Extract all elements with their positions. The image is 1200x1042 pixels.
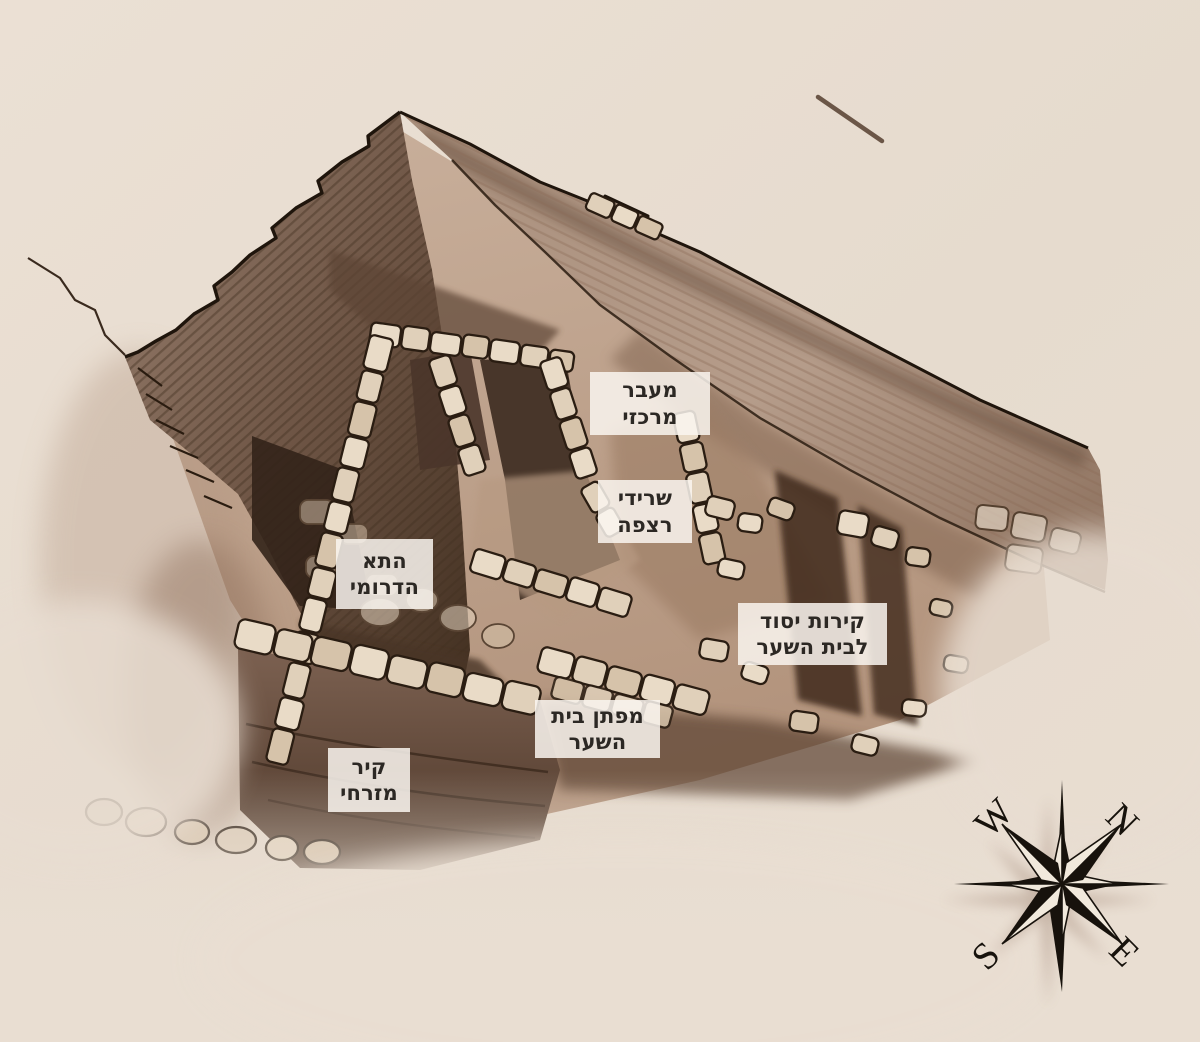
label-central-passage: מעבר מרכזי <box>590 372 710 435</box>
label-foundation-walls: קירות יסוד לבית השער <box>738 603 887 665</box>
label-line: קיר <box>328 754 410 780</box>
label-line: לבית השער <box>738 634 887 660</box>
label-floor-remains: שרידי רצפה <box>598 480 692 543</box>
label-line: מרכזי <box>590 404 710 430</box>
illustration-stage: W N S E מעבר מרכזי שרידי רצפה התא הדרומי… <box>0 0 1200 1042</box>
label-line: הדרומי <box>336 574 433 600</box>
label-gate-threshold: מפתן בית השער <box>535 700 660 758</box>
label-line: מעבר <box>590 377 710 403</box>
label-southern-chamber: התא הדרומי <box>336 539 433 609</box>
label-line: התא <box>336 548 433 574</box>
label-line: שרידי <box>598 485 692 511</box>
label-eastern-wall: קיר מזרחי <box>328 748 410 812</box>
label-line: מפתן בית <box>535 703 660 729</box>
label-line: קירות יסוד <box>738 608 887 634</box>
label-line: מזרחי <box>328 780 410 806</box>
label-line: רצפה <box>598 512 692 538</box>
label-line: השער <box>535 729 660 755</box>
